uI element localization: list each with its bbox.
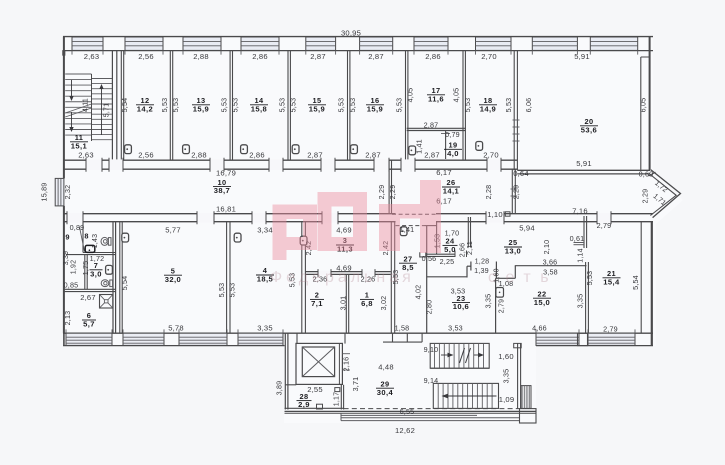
svg-text:3,0: 3,0 — [90, 269, 102, 278]
svg-text:2,56: 2,56 — [138, 151, 154, 160]
svg-text:2,80: 2,80 — [425, 300, 434, 315]
svg-text:14,1: 14,1 — [443, 187, 460, 196]
svg-text:2,28: 2,28 — [484, 185, 493, 200]
svg-text:5,0: 5,0 — [444, 245, 456, 254]
svg-text:2,29: 2,29 — [377, 185, 386, 200]
svg-text:2,63: 2,63 — [78, 151, 94, 160]
svg-text:15,8: 15,8 — [251, 104, 267, 113]
svg-text:1,17: 1,17 — [334, 392, 341, 406]
svg-text:5,53: 5,53 — [395, 98, 404, 113]
svg-text:3,66: 3,66 — [543, 258, 558, 267]
svg-text:7,1: 7,1 — [311, 299, 323, 308]
svg-text:0,64: 0,64 — [513, 169, 529, 178]
svg-text:3,39: 3,39 — [63, 251, 70, 265]
svg-text:6,8: 6,8 — [361, 299, 373, 308]
svg-text:1,39: 1,39 — [474, 266, 489, 275]
svg-text:0,85: 0,85 — [64, 281, 79, 290]
svg-text:30,4: 30,4 — [377, 388, 394, 397]
svg-text:5,53: 5,53 — [504, 98, 513, 113]
svg-text:5,54: 5,54 — [120, 276, 129, 291]
svg-text:5,53: 5,53 — [278, 98, 287, 113]
svg-text:5,53: 5,53 — [217, 283, 226, 298]
svg-text:5,53: 5,53 — [337, 98, 346, 113]
svg-text:2,87: 2,87 — [310, 52, 326, 61]
svg-text:1,60: 1,60 — [498, 352, 514, 361]
svg-text:5,53: 5,53 — [231, 98, 240, 113]
svg-text:2,63: 2,63 — [84, 52, 100, 61]
svg-text:5,78: 5,78 — [168, 323, 184, 332]
svg-text:2,55: 2,55 — [307, 385, 323, 394]
svg-text:0,61: 0,61 — [570, 234, 585, 243]
svg-text:3,35: 3,35 — [257, 323, 273, 332]
svg-text:2,86: 2,86 — [252, 52, 268, 61]
svg-text:15,1: 15,1 — [71, 141, 88, 150]
svg-text:1,92: 1,92 — [71, 260, 78, 274]
svg-text:8: 8 — [84, 232, 88, 241]
svg-text:12,62: 12,62 — [395, 426, 415, 435]
svg-text:14,9: 14,9 — [480, 104, 496, 113]
svg-text:2,87: 2,87 — [424, 151, 440, 160]
svg-text:1,09: 1,09 — [499, 395, 515, 404]
svg-text:4,66: 4,66 — [532, 323, 547, 332]
svg-text:15,9: 15,9 — [193, 104, 209, 113]
svg-text:3,89: 3,89 — [275, 381, 284, 396]
svg-text:3,35: 3,35 — [484, 294, 493, 309]
svg-text:5,53: 5,53 — [220, 98, 229, 113]
svg-text:3,34: 3,34 — [257, 225, 273, 234]
svg-text:4,0: 4,0 — [447, 149, 459, 158]
svg-text:2,87: 2,87 — [424, 120, 439, 129]
svg-text:15,4: 15,4 — [603, 277, 620, 286]
svg-text:0,79: 0,79 — [445, 130, 460, 139]
svg-text:2,13: 2,13 — [63, 311, 72, 326]
svg-text:2,25: 2,25 — [440, 257, 455, 266]
svg-text:9,10: 9,10 — [424, 345, 439, 354]
svg-text:4,48: 4,48 — [378, 363, 394, 372]
svg-text:15,0: 15,0 — [534, 298, 550, 307]
svg-text:2,87: 2,87 — [307, 151, 323, 160]
svg-text:13,0: 13,0 — [505, 247, 521, 256]
svg-text:3,35: 3,35 — [502, 369, 511, 384]
svg-text:5,54: 5,54 — [120, 98, 129, 113]
svg-text:16,79: 16,79 — [216, 168, 236, 177]
svg-text:0,56: 0,56 — [422, 254, 437, 263]
svg-text:3,01: 3,01 — [339, 296, 348, 311]
svg-text:9,14: 9,14 — [424, 376, 439, 385]
svg-text:2,16: 2,16 — [342, 357, 351, 372]
svg-text:32,0: 32,0 — [165, 275, 181, 284]
svg-text:5,71: 5,71 — [104, 103, 111, 117]
svg-text:5,77: 5,77 — [165, 225, 181, 234]
svg-text:5,53: 5,53 — [463, 98, 472, 113]
svg-text:2,9: 2,9 — [298, 400, 310, 409]
svg-text:4,02: 4,02 — [414, 285, 423, 300]
svg-text:1,14: 1,14 — [578, 248, 585, 262]
svg-text:15,89: 15,89 — [40, 183, 49, 202]
svg-text:3,71: 3,71 — [351, 377, 360, 392]
svg-text:1,41: 1,41 — [415, 139, 424, 154]
svg-text:0,89: 0,89 — [70, 223, 85, 232]
svg-text:16,81: 16,81 — [216, 205, 236, 214]
svg-text:30,95: 30,95 — [341, 28, 361, 37]
svg-text:6,17: 6,17 — [436, 168, 452, 177]
svg-text:2,10: 2,10 — [542, 240, 551, 255]
svg-text:2,29: 2,29 — [388, 185, 397, 200]
svg-text:7,16: 7,16 — [572, 206, 588, 215]
svg-text:1,41: 1,41 — [400, 225, 415, 234]
svg-text:2,11: 2,11 — [467, 241, 474, 255]
svg-text:0,60: 0,60 — [639, 169, 654, 178]
svg-text:10,6: 10,6 — [453, 302, 469, 311]
svg-text:2,88: 2,88 — [191, 151, 207, 160]
svg-text:9: 9 — [65, 233, 69, 242]
svg-text:5,53: 5,53 — [171, 98, 180, 113]
svg-text:3,02: 3,02 — [379, 296, 388, 311]
svg-text:2,67: 2,67 — [80, 293, 96, 302]
svg-text:6,05: 6,05 — [639, 98, 648, 113]
svg-text:5,53: 5,53 — [289, 98, 298, 113]
svg-text:2,79: 2,79 — [499, 299, 506, 313]
svg-text:2,79: 2,79 — [603, 324, 618, 333]
svg-text:5,53: 5,53 — [585, 271, 594, 286]
svg-text:5,7: 5,7 — [83, 320, 95, 329]
svg-text:3,53: 3,53 — [448, 324, 463, 333]
svg-text:53,6: 53,6 — [581, 125, 597, 134]
svg-text:2,66: 2,66 — [460, 243, 467, 257]
svg-text:2,29: 2,29 — [641, 189, 650, 204]
svg-text:4,69: 4,69 — [336, 225, 352, 234]
svg-text:1,28: 1,28 — [475, 256, 490, 265]
svg-text:2,70: 2,70 — [483, 151, 499, 160]
svg-text:2,86: 2,86 — [249, 151, 265, 160]
svg-text:5,54: 5,54 — [631, 275, 640, 290]
svg-text:5,91: 5,91 — [576, 159, 592, 168]
svg-text:4,05: 4,05 — [406, 88, 415, 103]
svg-text:1,10: 1,10 — [487, 210, 503, 219]
svg-text:6,55: 6,55 — [400, 407, 415, 416]
svg-text:1,58: 1,58 — [395, 324, 410, 333]
svg-text:Федеральная: Федеральная — [270, 269, 415, 286]
svg-text:11,6: 11,6 — [428, 94, 444, 103]
svg-text:2,32: 2,32 — [63, 185, 72, 200]
svg-text:5,53: 5,53 — [228, 283, 237, 298]
svg-text:2,87: 2,87 — [365, 151, 381, 160]
svg-text:2,88: 2,88 — [193, 52, 209, 61]
svg-text:2,87: 2,87 — [368, 52, 384, 61]
svg-text:5,94: 5,94 — [519, 224, 535, 233]
svg-text:5,53: 5,53 — [348, 98, 357, 113]
svg-text:5,91: 5,91 — [574, 52, 590, 61]
svg-text:14,2: 14,2 — [137, 104, 153, 113]
svg-text:5,53: 5,53 — [160, 98, 169, 113]
svg-text:2,86: 2,86 — [425, 52, 441, 61]
svg-text:38,7: 38,7 — [214, 186, 230, 195]
svg-text:4,11: 4,11 — [83, 98, 90, 112]
svg-text:3,35: 3,35 — [576, 294, 585, 309]
svg-text:2,79: 2,79 — [597, 221, 612, 230]
svg-text:4,05: 4,05 — [452, 88, 461, 103]
svg-text:2,56: 2,56 — [138, 52, 154, 61]
svg-text:6,06: 6,06 — [524, 98, 533, 113]
svg-text:15,9: 15,9 — [367, 104, 383, 113]
svg-text:15,9: 15,9 — [309, 104, 325, 113]
svg-text:1,43: 1,43 — [92, 234, 99, 248]
svg-text:2,70: 2,70 — [481, 52, 497, 61]
svg-text:сеть: сеть — [488, 269, 558, 286]
svg-text:2,29: 2,29 — [512, 185, 521, 200]
